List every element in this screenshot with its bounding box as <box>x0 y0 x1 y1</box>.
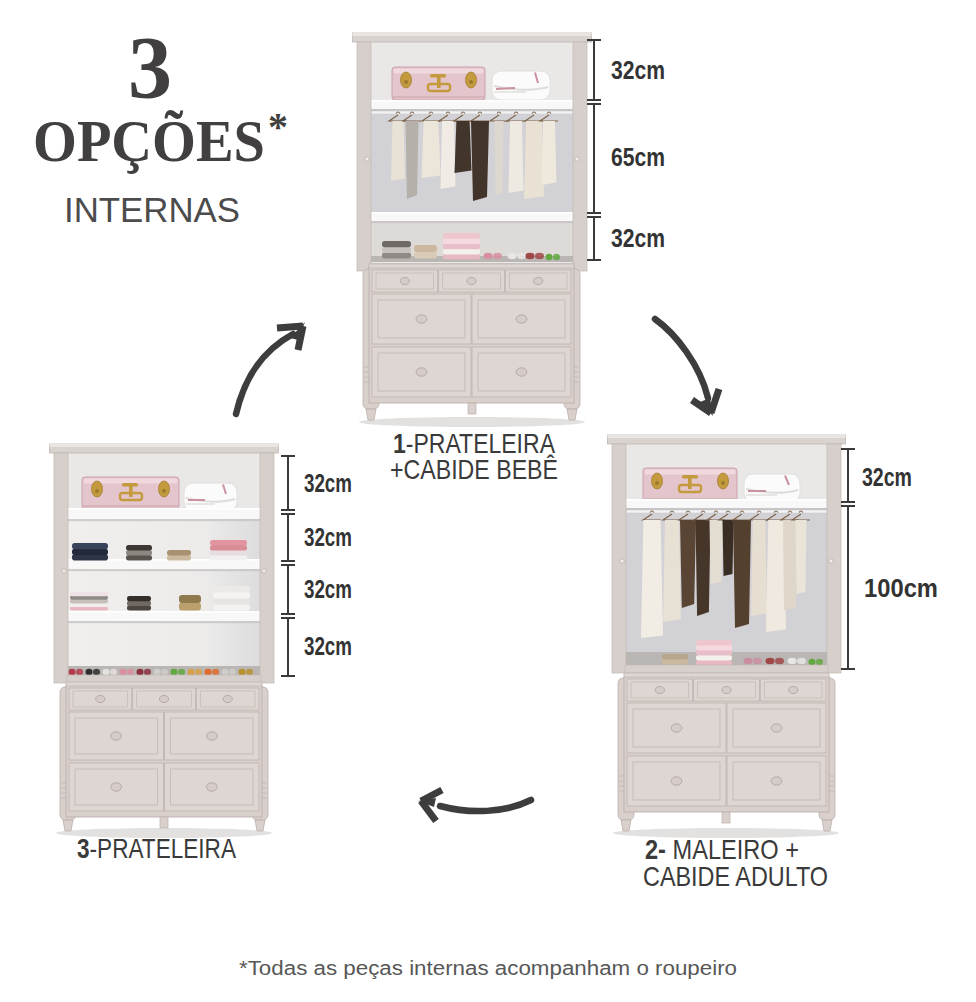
svg-text:3-PRATELEIRA: 3-PRATELEIRA <box>77 833 236 864</box>
svg-text:OPÇÕES: OPÇÕES <box>33 108 265 174</box>
svg-text:*: * <box>268 104 288 149</box>
svg-text:32cm: 32cm <box>304 469 352 497</box>
svg-text:INTERNAS: INTERNAS <box>64 190 240 229</box>
svg-text:+CABIDE BEBÊ: +CABIDE BEBÊ <box>390 454 558 485</box>
svg-text:100cm: 100cm <box>864 574 938 602</box>
svg-text:32cm: 32cm <box>304 523 352 551</box>
svg-text:32cm: 32cm <box>304 632 352 660</box>
svg-text:32cm: 32cm <box>862 463 912 491</box>
svg-text:32cm: 32cm <box>304 575 352 603</box>
svg-text:*Todas as peças internas acomp: *Todas as peças internas acompanham o ro… <box>239 957 737 979</box>
svg-text:65cm: 65cm <box>611 143 665 171</box>
svg-text:32cm: 32cm <box>611 56 665 84</box>
svg-text:CABIDE ADULTO: CABIDE ADULTO <box>643 861 828 892</box>
svg-text:3: 3 <box>128 19 172 116</box>
svg-text:32cm: 32cm <box>611 224 665 252</box>
